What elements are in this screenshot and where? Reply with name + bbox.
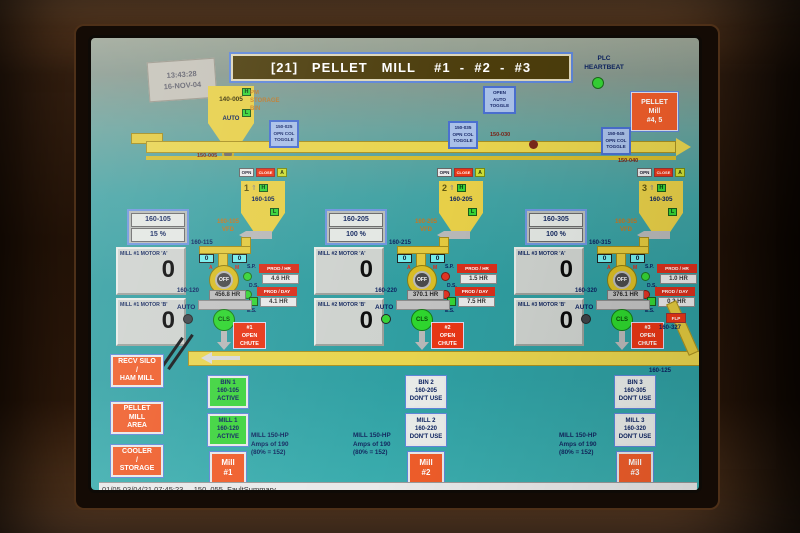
bin-high-level-indicator: H xyxy=(657,184,666,192)
level-up-arrow-icon: ⇑ xyxy=(251,184,257,192)
bin-vfd-label: 160-305 VFD xyxy=(607,219,645,235)
gate-auto-button[interactable]: A xyxy=(475,168,485,177)
return-conveyor-arrow-stem xyxy=(212,356,240,360)
vfd-tag: 160-305 xyxy=(529,213,583,227)
mill-hours-tag: 160-220 xyxy=(375,288,397,294)
return-conveyor xyxy=(188,351,700,366)
open-chute-button[interactable]: #1 OPEN CHUTE xyxy=(233,322,266,349)
mill-nav-button[interactable]: Mill #2 xyxy=(408,452,444,484)
mill-hours-tag: 160-120 xyxy=(177,288,199,294)
bin-tag: 160-205 xyxy=(439,196,483,203)
chute-arrow-stem xyxy=(619,331,625,342)
speed-setpoint-right[interactable]: 0 xyxy=(430,254,445,263)
bin-status-box[interactable]: BIN 2 160-205 DON'T USE xyxy=(406,376,446,408)
mill-motor-a-readout: MILL #1 MOTOR 'A' 0 xyxy=(116,247,186,295)
bin-vfd-readout: 160-105 15 % xyxy=(127,209,189,245)
dial-auto-marker: A xyxy=(209,265,213,271)
photo-frame: 13:43:28 16-NOV-04 [21] PELLET MILL #1 -… xyxy=(0,0,800,533)
bin-low-level-indicator: L xyxy=(668,208,677,216)
flap-valve-indicator: FLP xyxy=(666,313,686,323)
prod-hr-value: 1.5 HR xyxy=(460,274,497,284)
sp-indicator xyxy=(243,272,252,281)
auto-mode-label: AUTO xyxy=(375,304,393,311)
vfd-percent: 100 % xyxy=(329,228,383,242)
bin-vfd-label: 160-105 VFD xyxy=(209,219,247,235)
bin-low-level-indicator: L xyxy=(270,208,279,216)
dial-state: OFF xyxy=(615,273,629,287)
prod-day-label: PROD / DAY xyxy=(257,287,297,296)
chute-arrow-stem xyxy=(221,331,227,342)
sp-indicator xyxy=(441,272,450,281)
mill-hp-note: MILL 150-HP Amps of 190 (80% = 152) xyxy=(353,432,405,458)
mill-hp-note: MILL 150-HP Amps of 190 (80% = 152) xyxy=(251,432,303,458)
hmi-screen: 13:43:28 16-NOV-04 [21] PELLET MILL #1 -… xyxy=(88,35,702,493)
mill-hours-value: 376.1 HR xyxy=(607,290,644,300)
sp-label: S.P. xyxy=(247,264,256,270)
mill-section-3: 160-305 100 % MILL #3 MOTOR 'A' 0 MILL #… xyxy=(511,38,702,493)
dial-manual-marker: M xyxy=(633,265,637,271)
mill-hours-value: 456.8 HR xyxy=(209,290,246,300)
mill-section-2: 160-205 100 % MILL #2 MOTOR 'A' 0 MILL #… xyxy=(311,38,511,493)
auto-mode-indicator xyxy=(381,314,391,324)
gate-close-button[interactable]: CLOSE xyxy=(454,168,473,177)
speed-setpoint-right[interactable]: 0 xyxy=(630,254,645,263)
mill-status-column: BIN 1 160-105 ACTIVE MILL 1 160-120 ACTI… xyxy=(208,376,248,484)
dial-auto-marker: A xyxy=(407,265,411,271)
dial-manual-marker: M xyxy=(433,265,437,271)
mill-status-box[interactable]: MILL 1 160-120 ACTIVE xyxy=(208,414,248,446)
nav-cooler-storage-button[interactable]: COOLER / STORAGE xyxy=(111,445,163,477)
mill-status-column: BIN 3 160-305 DON'T USE MILL 3 160-320 D… xyxy=(615,376,655,484)
gate-open-status: OPN xyxy=(437,168,452,177)
chute-arrow-stem xyxy=(419,331,425,342)
sp-label: S.P. xyxy=(645,264,654,270)
mill-nav-button[interactable]: Mill #1 xyxy=(210,452,246,484)
bin-tag: 160-305 xyxy=(639,196,683,203)
bin-status-box[interactable]: BIN 1 160-105 ACTIVE xyxy=(208,376,248,408)
mill-hours-value: 370.1 HR xyxy=(407,290,444,300)
mill-motor-b-readout: MILL #3 MOTOR 'B' 0 xyxy=(514,298,584,346)
vfd-percent: 100 % xyxy=(529,228,583,242)
chute-closed-indicator[interactable]: CLS xyxy=(213,309,235,331)
prod-hr-label: PROD / HR xyxy=(657,264,697,273)
mill-motor-b-readout: MILL #1 MOTOR 'B' 0 xyxy=(116,298,186,346)
vfd-percent: 15 % xyxy=(131,228,185,242)
mill-hours-tag: 160-320 xyxy=(575,288,597,294)
flap-valve-tag: 160-327 xyxy=(659,325,681,331)
chute-down-arrow-icon xyxy=(217,342,231,350)
auto-mode-indicator xyxy=(183,314,193,324)
bin-number: 1 xyxy=(244,183,249,193)
gate-close-button[interactable]: CLOSE xyxy=(654,168,673,177)
gate-auto-button[interactable]: A xyxy=(675,168,685,177)
bin-gate-controls: OPN CLOSE A xyxy=(637,168,685,178)
nav-recv-silo-ham-mill-button[interactable]: RECV SILO / HAM MILL xyxy=(111,355,163,387)
dial-manual-marker: M xyxy=(235,265,239,271)
bin-gate-controls: OPN CLOSE A xyxy=(437,168,485,178)
dial-state: OFF xyxy=(217,273,231,287)
sp-indicator xyxy=(641,272,650,281)
bin-high-level-indicator: H xyxy=(259,184,268,192)
gate-auto-button[interactable]: A xyxy=(277,168,287,177)
nav-pellet-mill-area-button[interactable]: PELLET MILL AREA xyxy=(111,402,163,434)
open-chute-button[interactable]: #2 OPEN CHUTE xyxy=(431,322,464,349)
feeder-tag: 160-115 xyxy=(191,240,213,246)
mill-motor-a-readout: MILL #2 MOTOR 'A' 0 xyxy=(314,247,384,295)
mill-hp-note: MILL 150-HP Amps of 190 (80% = 152) xyxy=(559,432,611,458)
bin-tag: 160-105 xyxy=(241,196,285,203)
chute-closed-indicator[interactable]: CLS xyxy=(611,309,633,331)
auto-mode-label: AUTO xyxy=(177,304,195,311)
prod-hr-value: 1.0 HR xyxy=(660,274,697,284)
level-up-arrow-icon: ⇑ xyxy=(449,184,455,192)
chute-down-arrow-icon xyxy=(415,342,429,350)
speed-setpoint-right[interactable]: 0 xyxy=(232,254,247,263)
chute-down-arrow-icon xyxy=(615,342,629,350)
mill-nav-button[interactable]: Mill #3 xyxy=(617,452,653,484)
bin-vfd-readout: 160-205 100 % xyxy=(325,209,387,245)
dial-auto-marker: A xyxy=(607,265,611,271)
bin-high-level-indicator: H xyxy=(457,184,466,192)
bin-status-box[interactable]: BIN 3 160-305 DON'T USE xyxy=(615,376,655,408)
dial-state: OFF xyxy=(415,273,429,287)
return-conveyor-arrow-icon xyxy=(201,352,212,364)
speed-setpoint-left[interactable]: 0 xyxy=(397,254,412,263)
fault-summary-status-bar[interactable]: 01/05 03/04/21 07:45:23 _150_055_FaultSu… xyxy=(99,482,697,493)
vfd-tag: 160-105 xyxy=(131,213,185,227)
mill-status-box[interactable]: MILL 3 160-320 DON'T USE xyxy=(615,414,655,446)
prod-day-label: PROD / DAY xyxy=(455,287,495,296)
prod-hr-label: PROD / HR xyxy=(259,264,299,273)
prod-day-label: PROD / DAY xyxy=(655,287,695,296)
bin-number: 2 xyxy=(442,183,447,193)
feeder-tag: 160-215 xyxy=(389,240,411,246)
mill-motor-b-readout: MILL #2 MOTOR 'B' 0 xyxy=(314,298,384,346)
return-conveyor-tag: 160-125 xyxy=(649,368,671,374)
prod-day-value: 4.1 HR xyxy=(260,297,297,307)
bin-vfd-readout: 160-305 100 % xyxy=(525,209,587,245)
bin-low-level-indicator: L xyxy=(468,208,477,216)
bin-gate-controls: OPN CLOSE A xyxy=(239,168,287,178)
chute-closed-indicator[interactable]: CLS xyxy=(411,309,433,331)
speed-setpoint-left[interactable]: 0 xyxy=(597,254,612,263)
bin-vfd-label: 160-205 VFD xyxy=(407,219,445,235)
auto-mode-label: AUTO xyxy=(575,304,593,311)
gate-open-status: OPN xyxy=(637,168,652,177)
speed-setpoint-left[interactable]: 0 xyxy=(199,254,214,263)
gate-open-status: OPN xyxy=(239,168,254,177)
feeder-tag: 160-315 xyxy=(589,240,611,246)
vfd-tag: 160-205 xyxy=(329,213,383,227)
prod-hr-value: 4.6 HR xyxy=(262,274,299,284)
bin-number: 3 xyxy=(642,183,647,193)
prod-day-value: 7.5 HR xyxy=(458,297,495,307)
gate-close-button[interactable]: CLOSE xyxy=(256,168,275,177)
mill-status-box[interactable]: MILL 2 160-220 DON'T USE xyxy=(406,414,446,446)
mill-status-column: BIN 2 160-205 DON'T USE MILL 2 160-220 D… xyxy=(406,376,446,484)
sp-label: S.P. xyxy=(445,264,454,270)
prod-hr-label: PROD / HR xyxy=(457,264,497,273)
auto-mode-indicator xyxy=(581,314,591,324)
mill-motor-a-readout: MILL #3 MOTOR 'A' 0 xyxy=(514,247,584,295)
level-up-arrow-icon: ⇑ xyxy=(649,184,655,192)
